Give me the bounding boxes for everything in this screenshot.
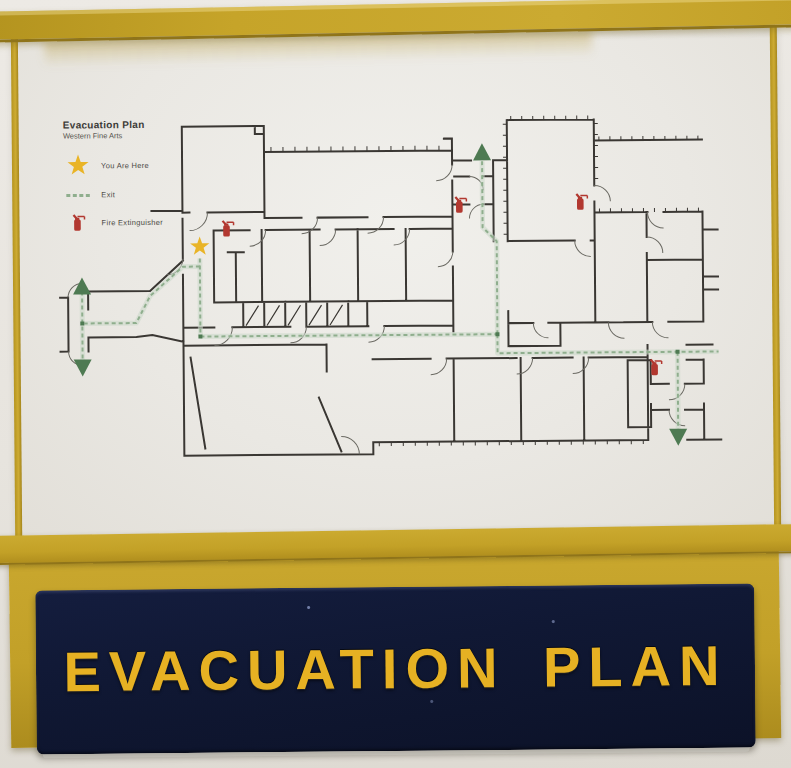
fire-extinguisher-icon [651, 359, 662, 375]
you-are-here-star [190, 236, 209, 254]
floor-plan-poster: Evacuation Plan Western Fine Arts You Ar… [14, 24, 779, 537]
you-are-here-marker [190, 236, 209, 254]
evacuation-plan-sign-text: EVACUATION PLAN [63, 632, 728, 705]
legend-subtitle: Western Fine Arts [63, 130, 233, 140]
photo-of-evacuation-sign: Evacuation Plan Western Fine Arts You Ar… [0, 0, 791, 768]
legend-label: You Are Here [93, 160, 149, 169]
exit-arrow [473, 143, 491, 160]
legend-item-you-are-here: You Are Here [63, 152, 233, 177]
legend-title: Evacuation Plan [63, 118, 233, 130]
legend: Evacuation Plan Western Fine Arts You Ar… [63, 118, 234, 232]
star-icon [63, 153, 93, 177]
legend-label: Fire Extinguisher [93, 217, 162, 227]
legend-label: Exit [93, 190, 115, 199]
legend-item-fire-extinguisher: Fire Extinguisher [63, 211, 233, 232]
fire-extinguisher-icon [63, 212, 93, 232]
legend-item-exit: Exit [63, 189, 233, 199]
route-dash-icon [63, 192, 93, 198]
exit-arrow [669, 429, 687, 446]
exit-arrow [74, 359, 92, 376]
exit-arrow [73, 277, 91, 294]
evacuation-plan-sign: EVACUATION PLAN [35, 584, 756, 755]
fire-extinguisher-icon [576, 194, 587, 210]
window-ticks [271, 115, 701, 447]
